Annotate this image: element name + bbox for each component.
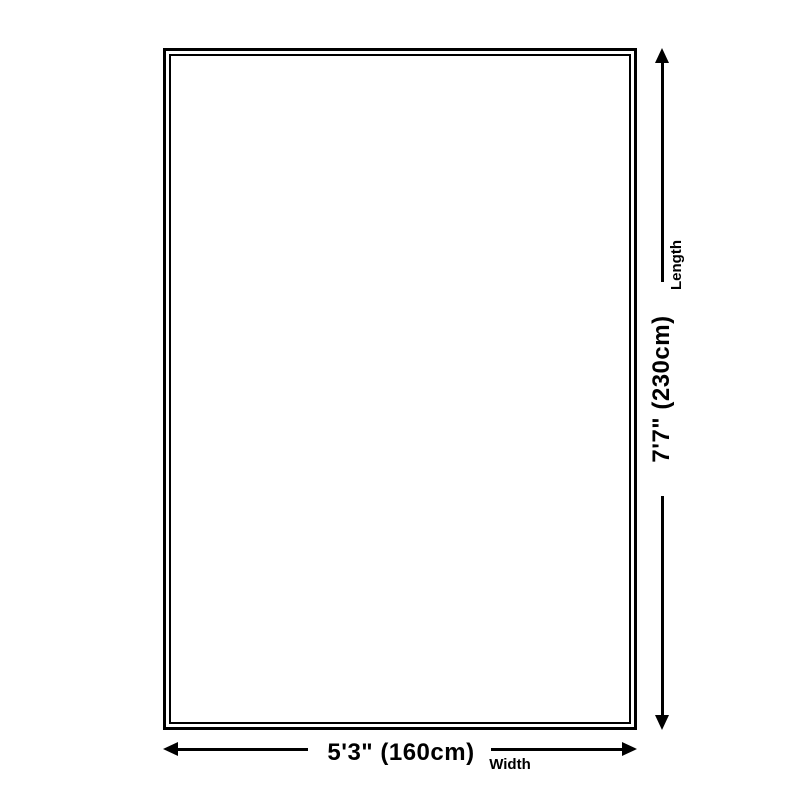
length-arrow-line-bottom <box>661 496 664 717</box>
rug-outline-inner-border <box>169 54 631 724</box>
arrow-right-icon <box>622 742 637 756</box>
width-label: Width <box>483 757 537 773</box>
length-value: 7'7" (230cm) <box>649 304 675 474</box>
width-value: 5'3" (160cm) <box>318 740 484 766</box>
width-arrow-line-right <box>491 748 623 751</box>
length-arrow-line-top <box>661 61 664 282</box>
length-label: Length <box>669 235 685 295</box>
dimension-diagram: Length 7'7" (230cm) 5'3" (160cm) Width <box>0 0 800 800</box>
arrow-down-icon <box>655 715 669 730</box>
rug-outline <box>163 48 637 730</box>
width-arrow-line-left <box>176 748 308 751</box>
